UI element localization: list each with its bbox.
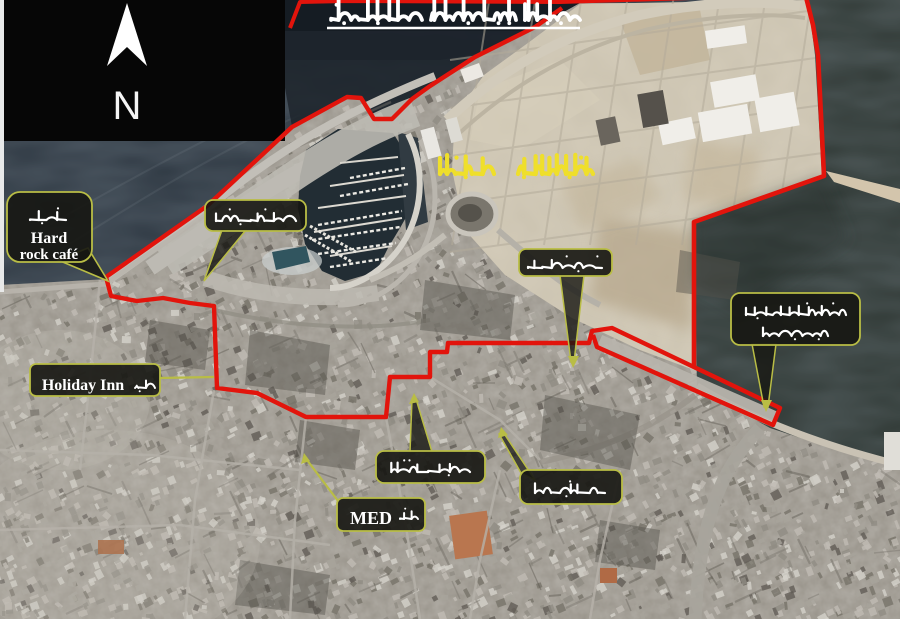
- svg-text:Hard: Hard: [31, 230, 68, 247]
- svg-text:rock café: rock café: [20, 247, 79, 263]
- svg-text:N: N: [113, 84, 142, 128]
- svg-text:Holiday Inn: Holiday Inn: [42, 377, 124, 394]
- svg-text:MED: MED: [350, 508, 392, 528]
